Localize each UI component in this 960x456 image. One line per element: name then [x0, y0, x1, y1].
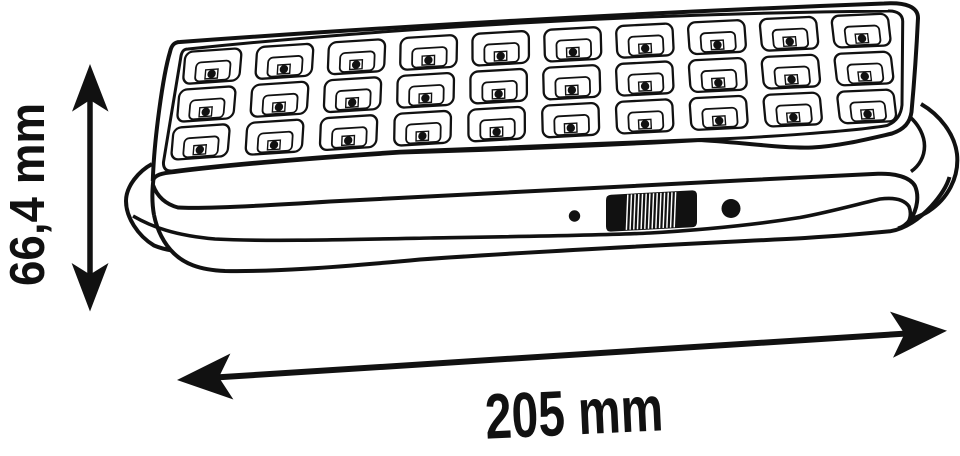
svg-text:205 mm: 205 mm — [483, 372, 664, 451]
svg-text:66,4 mm: 66,4 mm — [1, 103, 55, 286]
